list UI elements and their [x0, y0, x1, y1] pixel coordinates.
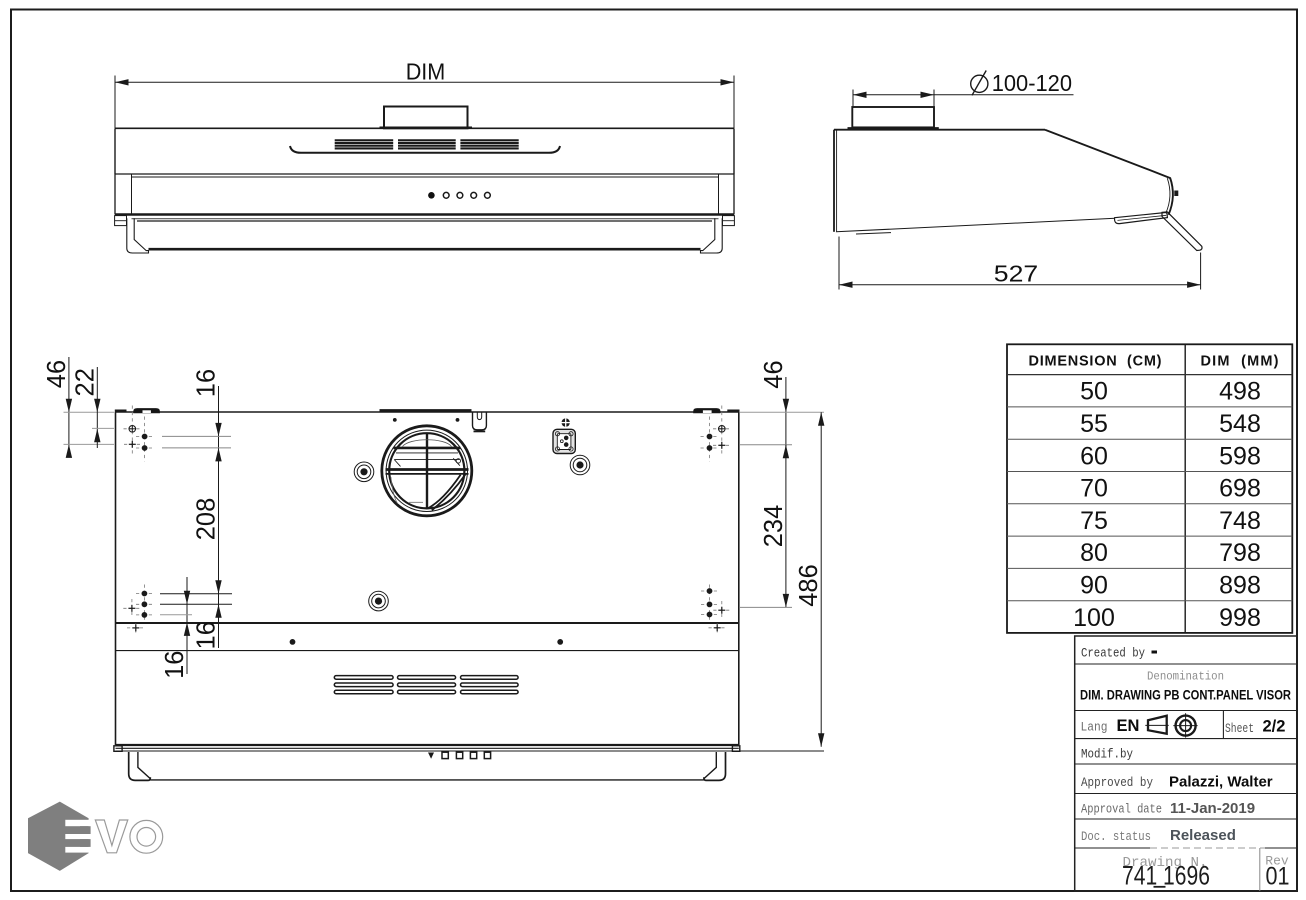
svg-text:DIM (MM): DIM (MM) — [1201, 354, 1279, 370]
svg-text:DIMENSION (CM): DIMENSION (CM) — [1029, 354, 1162, 370]
svg-text:548: 548 — [1219, 410, 1261, 438]
svg-text:208: 208 — [193, 498, 221, 541]
svg-text:100-120: 100-120 — [992, 70, 1072, 96]
svg-text:527: 527 — [994, 261, 1038, 287]
svg-text:698: 698 — [1219, 475, 1261, 503]
svg-text:16: 16 — [161, 651, 189, 679]
svg-text:598: 598 — [1219, 442, 1261, 470]
svg-text:DIM. DRAWING PB CONT.PANEL VIS: DIM. DRAWING PB CONT.PANEL VISOR — [1080, 688, 1291, 703]
svg-text:16: 16 — [193, 621, 221, 649]
svg-text:Approval date: Approval date — [1081, 802, 1162, 817]
svg-text:46: 46 — [760, 360, 788, 388]
svg-text:50: 50 — [1080, 378, 1108, 406]
svg-text:Modif.by: Modif.by — [1081, 747, 1133, 762]
svg-text:16: 16 — [193, 369, 221, 397]
svg-text:Created by: Created by — [1081, 646, 1145, 661]
svg-text:55: 55 — [1080, 410, 1108, 438]
svg-text:EN: EN — [1117, 717, 1140, 735]
svg-text:2/2: 2/2 — [1263, 718, 1286, 736]
svg-text:234: 234 — [760, 505, 788, 548]
svg-text:70: 70 — [1080, 475, 1108, 503]
svg-text:498: 498 — [1219, 378, 1261, 406]
svg-text:748: 748 — [1219, 507, 1261, 535]
svg-text:01: 01 — [1266, 863, 1290, 891]
svg-text:22: 22 — [71, 368, 99, 396]
svg-text:Approved by: Approved by — [1081, 775, 1153, 790]
svg-text:898: 898 — [1219, 572, 1261, 600]
svg-text:798: 798 — [1219, 539, 1261, 567]
svg-text:DIM: DIM — [406, 58, 446, 84]
svg-text:Palazzi, Walter: Palazzi, Walter — [1169, 774, 1273, 791]
svg-text:75: 75 — [1080, 507, 1108, 535]
svg-text:Denomination: Denomination — [1147, 670, 1224, 684]
svg-text:486: 486 — [795, 564, 823, 607]
svg-text:90: 90 — [1080, 572, 1108, 600]
svg-text:60: 60 — [1080, 442, 1108, 470]
svg-text:100: 100 — [1073, 604, 1115, 632]
svg-text:998: 998 — [1219, 604, 1261, 632]
svg-text:46: 46 — [43, 360, 71, 388]
svg-text:11-Jan-2019: 11-Jan-2019 — [1170, 800, 1255, 817]
svg-text:Released: Released — [1170, 827, 1236, 844]
svg-text:80: 80 — [1080, 539, 1108, 567]
svg-text:Lang: Lang — [1081, 720, 1108, 735]
svg-text:741 1696: 741 1696 — [1122, 861, 1210, 891]
svg-text:Doc. status: Doc. status — [1081, 829, 1151, 844]
svg-text:Sheet: Sheet — [1225, 722, 1254, 736]
